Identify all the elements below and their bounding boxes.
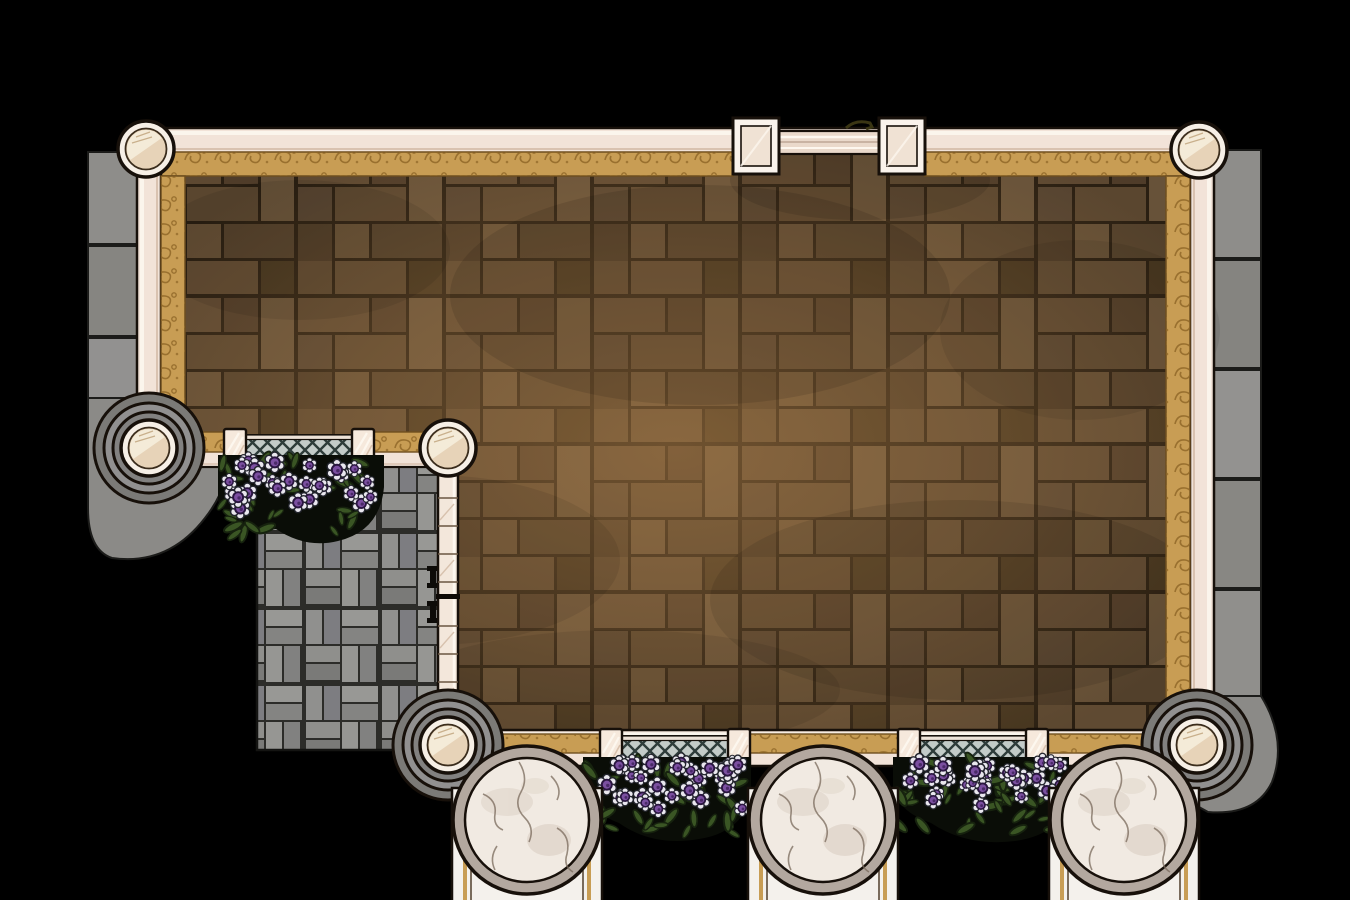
flower [973,796,989,813]
flower [1005,764,1021,781]
flower [669,758,685,776]
flower [347,461,362,477]
leaf-cluster [654,822,669,828]
marble-columns [452,746,1199,900]
marble-column-center [748,746,898,900]
wall-right [1166,150,1214,746]
wall-top [140,118,1206,176]
flower-bed-bottom-right [889,751,1070,842]
flower [664,788,679,804]
battle-map-canvas [0,0,1350,900]
leaf-cluster [604,823,619,833]
gold-trim-top [160,152,1192,176]
flower [1044,755,1059,771]
round-pillar-bottom-left [420,717,476,773]
flower [302,458,316,473]
round-pillar-top-right [1171,122,1227,178]
flower [642,754,660,774]
flower [965,761,985,782]
marble-column-right [1049,746,1199,900]
round-pillar-mid-left [121,420,177,476]
round-pillar-top-left [118,121,174,177]
round-pillar-path-corner [420,420,476,476]
flower [902,772,918,790]
leaf-cluster [690,809,698,827]
top-gate[interactable] [772,131,884,154]
flower [934,756,952,776]
marble-column-left [452,746,602,900]
flower [344,485,359,501]
flower [701,759,719,778]
flower-bed-bottom-left [580,753,751,841]
flower [360,474,374,490]
gate-pillar-left [733,118,779,174]
map-scene [0,0,1350,900]
flower [637,794,653,811]
flower [229,487,248,508]
flower [265,452,284,473]
flower [289,492,308,512]
flower [634,770,648,785]
round-pillar-bottom-right [1169,717,1225,773]
flower [327,459,347,480]
door-gap [436,594,460,599]
flower-bed-middle [216,450,384,544]
flower [222,473,237,489]
flower [249,466,267,486]
flower [269,479,286,498]
flower [363,489,377,504]
flower [610,756,628,775]
flower [312,477,327,494]
flower [648,777,666,797]
flower [910,753,929,774]
flower [925,791,941,809]
flower [234,457,249,473]
flower [729,755,747,774]
gate-pillar-right [879,118,925,174]
gold-trim-right [1166,176,1190,730]
flower [617,788,633,806]
flower [680,780,698,800]
